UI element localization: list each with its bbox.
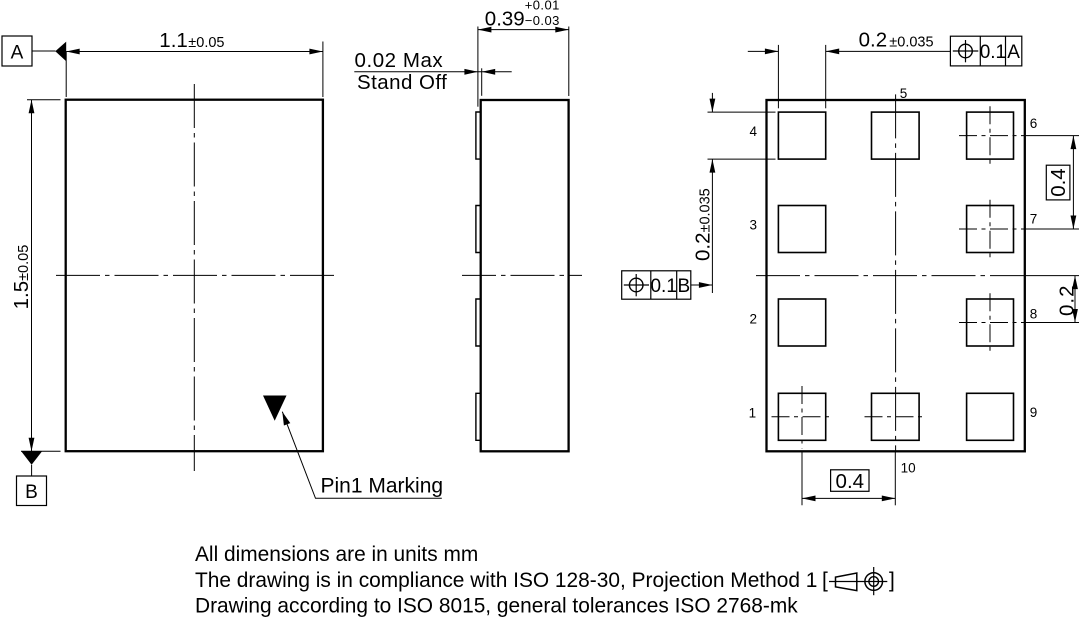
svg-text:Stand Off: Stand Off <box>357 71 447 94</box>
svg-text:5: 5 <box>900 86 908 101</box>
svg-text:0.4: 0.4 <box>836 470 865 493</box>
svg-text:A: A <box>11 43 24 64</box>
svg-text:±0.035: ±0.035 <box>889 35 933 51</box>
svg-text:All dimensions are in units mm: All dimensions are in units mm <box>195 543 478 566</box>
svg-text:A: A <box>1007 42 1020 63</box>
svg-text:The drawing is in compliance w: The drawing is in compliance with ISO 12… <box>195 569 817 592</box>
svg-text:10: 10 <box>901 460 916 475</box>
svg-text:6: 6 <box>1030 116 1038 131</box>
svg-text:0.02 Max: 0.02 Max <box>355 49 444 72</box>
svg-text:9: 9 <box>1030 405 1038 420</box>
svg-text:0.1: 0.1 <box>650 276 676 297</box>
svg-text:Pin1 Marking: Pin1 Marking <box>321 475 444 498</box>
svg-text:0.2: 0.2 <box>1056 285 1079 317</box>
svg-text:2: 2 <box>749 311 757 326</box>
svg-text:[: [ <box>822 569 828 592</box>
svg-text:±0.05: ±0.05 <box>188 35 224 51</box>
svg-text:8: 8 <box>1030 306 1038 321</box>
svg-text:1.5±0.05: 1.5±0.05 <box>10 245 33 310</box>
svg-text:1.1: 1.1 <box>159 29 188 52</box>
svg-text:0.39: 0.39 <box>485 8 525 31</box>
svg-text:4: 4 <box>749 124 757 139</box>
svg-text:7: 7 <box>1030 212 1038 227</box>
svg-text:B: B <box>678 276 691 297</box>
svg-text:Drawing according to ISO 8015,: Drawing according to ISO 8015, general t… <box>195 595 798 618</box>
svg-text:0.2±0.035: 0.2±0.035 <box>692 188 715 261</box>
svg-text:0.4: 0.4 <box>1047 168 1070 197</box>
svg-text:−0.03: −0.03 <box>525 13 560 28</box>
svg-text:B: B <box>25 482 38 503</box>
svg-text:+0.01: +0.01 <box>525 0 560 12</box>
svg-text:3: 3 <box>749 218 757 233</box>
svg-text:1: 1 <box>749 406 757 421</box>
svg-text:0.2: 0.2 <box>859 29 888 52</box>
svg-text:0.1: 0.1 <box>980 42 1006 63</box>
svg-text:]: ] <box>889 569 895 592</box>
